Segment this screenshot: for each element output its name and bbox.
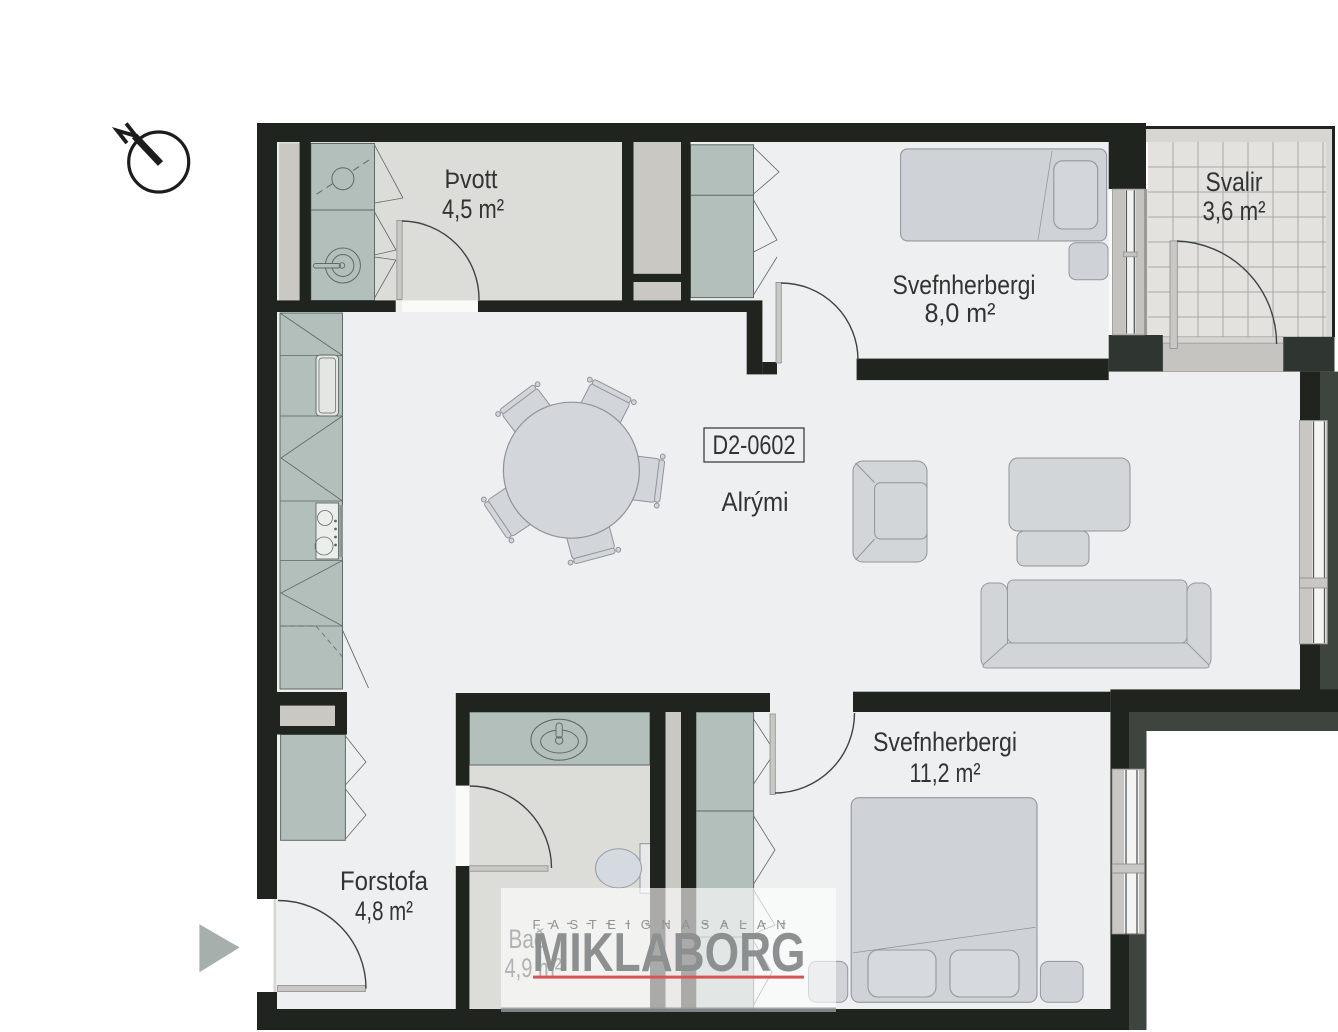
- svg-text:8,0 m²: 8,0 m²: [925, 298, 996, 328]
- svg-text:Svefnherbergi: Svefnherbergi: [873, 727, 1017, 757]
- svg-text:Svalir: Svalir: [1206, 167, 1263, 197]
- svg-text:11,2 m²: 11,2 m²: [910, 758, 981, 788]
- svg-text:Alrými: Alrými: [722, 487, 789, 517]
- svg-text:Þvott: Þvott: [445, 164, 498, 194]
- svg-text:4,8 m²: 4,8 m²: [355, 896, 413, 926]
- svg-text:MIKLABORG: MIKLABORG: [533, 921, 806, 983]
- svg-text:Forstofa: Forstofa: [340, 866, 429, 896]
- svg-text:4,5 m²: 4,5 m²: [442, 194, 504, 224]
- svg-text:Svefnherbergi: Svefnherbergi: [893, 270, 1036, 300]
- svg-text:D2-0602: D2-0602: [713, 430, 796, 460]
- svg-text:3,6 m²: 3,6 m²: [1203, 196, 1266, 226]
